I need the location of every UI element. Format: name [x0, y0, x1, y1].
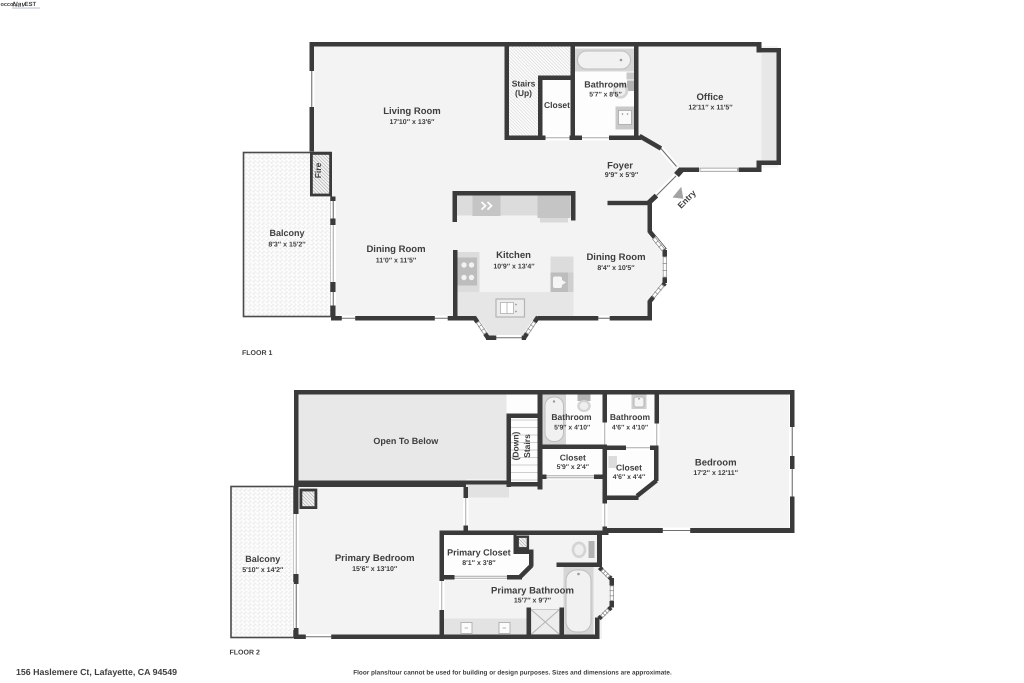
svg-text:15′7″ x 9′7″: 15′7″ x 9′7″ [514, 598, 552, 605]
svg-text:8′1″ x 3′8″: 8′1″ x 3′8″ [462, 560, 496, 567]
svg-text:Closet: Closet [616, 463, 642, 473]
svg-text:Balcony: Balcony [245, 554, 280, 564]
svg-text:Primary Closet: Primary Closet [447, 548, 511, 558]
svg-text:Primary Bedroom: Primary Bedroom [335, 553, 415, 564]
svg-text:4′6″ x 4′10″: 4′6″ x 4′10″ [612, 425, 649, 432]
svg-text:Open To Below: Open To Below [373, 436, 439, 446]
svg-text:Foyer: Foyer [607, 161, 633, 172]
svg-text:8′4″ x 10′5″: 8′4″ x 10′5″ [597, 265, 635, 272]
svg-text:Office: Office [697, 92, 724, 103]
svg-text:Bathroom: Bathroom [584, 80, 627, 90]
svg-text:5′9″ x 4′10″: 5′9″ x 4′10″ [554, 425, 591, 432]
svg-text:17′2″ x 12′11″: 17′2″ x 12′11″ [693, 470, 738, 477]
svg-text:Dining Room: Dining Room [586, 252, 645, 263]
svg-text:5′9″ x 2′4″: 5′9″ x 2′4″ [557, 464, 590, 471]
svg-text:Primary Bathroom: Primary Bathroom [491, 586, 574, 597]
svg-text:(Down): (Down) [511, 431, 521, 460]
svg-text:Bathroom: Bathroom [551, 412, 592, 422]
svg-text:(Up): (Up) [515, 88, 532, 98]
svg-text:4′6″ x 4′4″: 4′6″ x 4′4″ [613, 474, 646, 481]
svg-text:12′11″ x 11′5″: 12′11″ x 11′5″ [688, 105, 733, 112]
svg-text:9′9″ x 5′9″: 9′9″ x 5′9″ [605, 172, 639, 179]
svg-text:Stairs: Stairs [522, 434, 532, 458]
svg-text:FLOOR 1: FLOOR 1 [242, 350, 272, 357]
svg-text:Balcony: Balcony [269, 228, 304, 238]
svg-text:10′9″ x 13′4″: 10′9″ x 13′4″ [493, 264, 535, 271]
svg-text:17′10″ x 13′6″: 17′10″ x 13′6″ [389, 119, 435, 126]
svg-text:Floor plans/tour cannot be use: Floor plans/tour cannot be used for buil… [353, 670, 672, 677]
svg-text:5′7″ x 8′5″: 5′7″ x 8′5″ [589, 92, 622, 99]
svg-text:Stairs: Stairs [512, 79, 536, 89]
svg-text:5′10″ x 14′2″: 5′10″ x 14′2″ [242, 567, 284, 574]
svg-text:Closet: Closet [560, 453, 586, 463]
svg-text:11′0″ x 11′5″: 11′0″ x 11′5″ [376, 258, 417, 265]
svg-text:Dining Room: Dining Room [366, 244, 425, 255]
svg-text:FLOOR 2: FLOOR 2 [230, 650, 260, 657]
svg-text:Bedroom: Bedroom [695, 458, 737, 469]
svg-text:15′6″ x 13′10″: 15′6″ x 13′10″ [352, 566, 398, 573]
svg-text:EST: EST [25, 1, 37, 8]
svg-text:Bathroom: Bathroom [610, 412, 651, 422]
svg-text:Closet: Closet [544, 100, 570, 110]
svg-text:Living Room: Living Room [383, 106, 441, 117]
svg-text:Fire: Fire [313, 162, 323, 178]
svg-text:156 Haslemere Ct, Lafayette, C: 156 Haslemere Ct, Lafayette, CA 94549 [16, 667, 177, 677]
svg-text:8′3″ x 15′2″: 8′3″ x 15′2″ [268, 242, 306, 249]
svg-text:Kitchen: Kitchen [496, 250, 531, 261]
